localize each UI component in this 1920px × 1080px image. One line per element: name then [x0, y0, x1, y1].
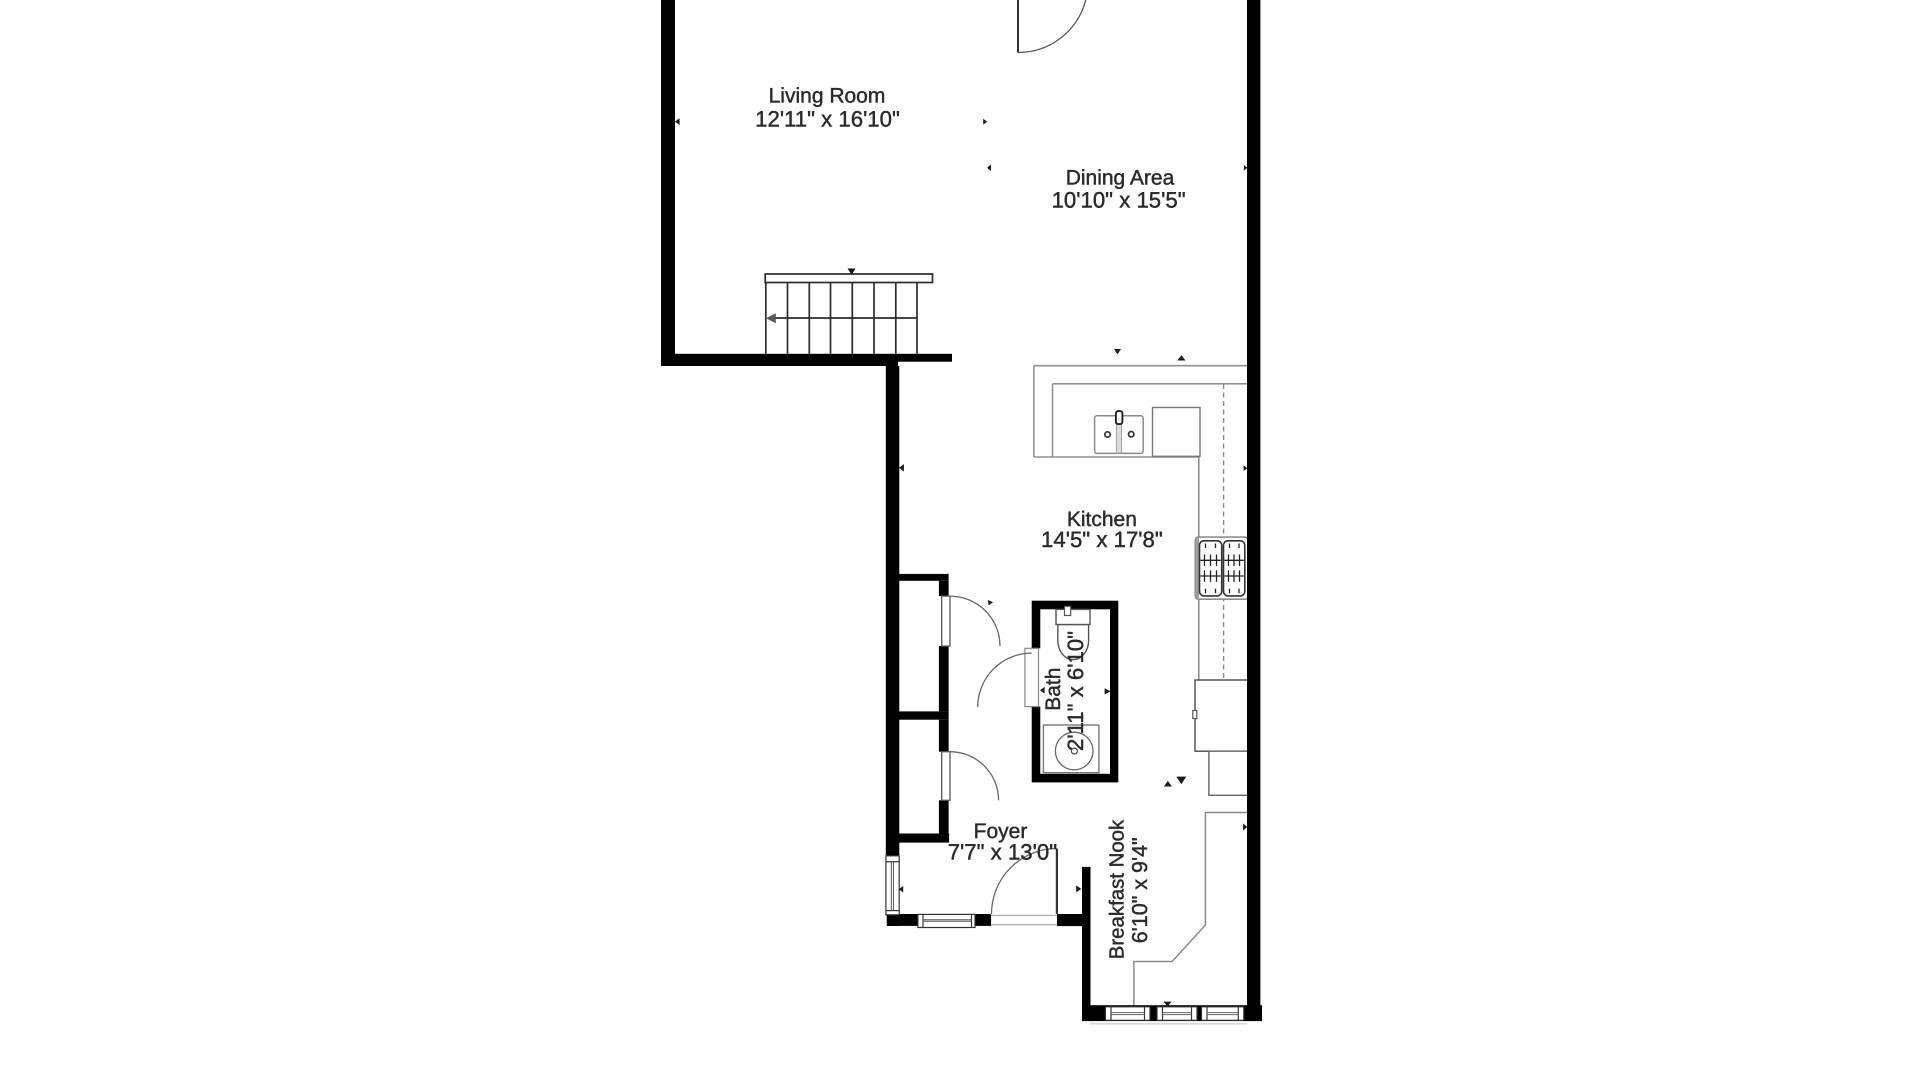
svg-text:6'10" x 9'4": 6'10" x 9'4" [1128, 837, 1152, 943]
svg-text:12'11" x 16'10": 12'11" x 16'10" [755, 107, 900, 132]
svg-text:Breakfast Nook: Breakfast Nook [1106, 819, 1128, 959]
svg-text:14'5" x 17'8": 14'5" x 17'8" [1041, 527, 1163, 552]
svg-text:10'10" x 15'5": 10'10" x 15'5" [1052, 188, 1186, 213]
svg-text:Dining Area: Dining Area [1066, 166, 1175, 189]
svg-text:Living Room: Living Room [769, 84, 886, 107]
svg-text:Bath: Bath [1042, 668, 1065, 711]
svg-text:2'11" x 6'10": 2'11" x 6'10" [1063, 631, 1088, 751]
svg-text:7'7" x 13'0": 7'7" x 13'0" [948, 840, 1057, 865]
